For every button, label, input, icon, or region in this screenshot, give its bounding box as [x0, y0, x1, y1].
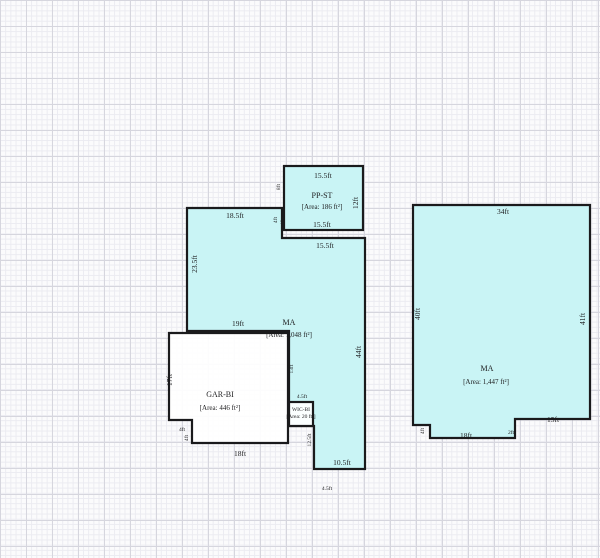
dim-r-notch: 4ft [419, 427, 426, 434]
room-ma-right-shape[interactable] [413, 205, 590, 438]
dim-r-left: 40ft [413, 307, 422, 320]
dim-gar-notch-h: 4ft [183, 434, 190, 441]
room-gar-bi-name: GAR-BI [206, 390, 234, 399]
dim-gar-notch-w: 4ft [179, 426, 186, 433]
dim-r-step: 2ft [508, 429, 515, 436]
room-gar-bi-shape[interactable] [169, 333, 288, 443]
dim-ma-right: 44ft [354, 345, 363, 358]
dim-r-bottom-right: 15ft [547, 415, 560, 424]
dim-stub-left: 12.5ft [306, 433, 313, 446]
dim-gar-left: 17ft [165, 373, 174, 386]
dim-pp-top: 15.5ft [314, 171, 333, 180]
room-ma-left-name: MA [283, 318, 296, 327]
room-ma-right-name: MA [481, 364, 494, 373]
dim-pp-joint-a: 4ft [272, 216, 279, 223]
room-gar-bi-area: [Area: 446 ft²] [200, 404, 241, 412]
dim-r-bottom: 18ft [460, 431, 473, 440]
room-ma-right-area: [Area: 1,447 ft²] [463, 378, 509, 386]
dim-r-right: 41ft [578, 312, 587, 325]
dim-pp-joint-b: 4ft [279, 218, 286, 225]
room-pp-st-name: PP-ST [312, 191, 333, 200]
room-closet-area: [Area: 20 ft²] [286, 413, 315, 420]
dim-below-stub: 4.5ft [322, 485, 333, 492]
room-pp-st-area: [Area: 186 ft²] [302, 203, 343, 211]
dim-pp-right: 12ft [351, 196, 360, 209]
dim-pp-bottom: 15.5ft [313, 220, 332, 229]
dim-ma-gar-edge: 13ft [288, 364, 295, 373]
dim-ma-inner: 19ft [232, 319, 245, 328]
dim-closet-top: 4.5ft [297, 393, 308, 400]
floorplan-canvas[interactable]: 15.5ft PP-ST [Area: 186 ft²] 15.5ft 12ft… [0, 0, 600, 558]
dim-pp-left: 8ft [275, 183, 282, 190]
dim-gar-bottom: 18ft [234, 449, 247, 458]
room-ma-left-area: [Area: 1,048 ft²] [266, 331, 312, 339]
dim-ma-top-right: 15.5ft [316, 241, 335, 250]
room-closet-name: WIC-BI [292, 407, 310, 413]
dim-stub-bottom: 10.5ft [333, 458, 352, 467]
dim-ma-top: 18.5ft [226, 211, 245, 220]
dim-ma-left: 23.5ft [190, 254, 199, 273]
dim-r-top: 34ft [497, 207, 510, 216]
